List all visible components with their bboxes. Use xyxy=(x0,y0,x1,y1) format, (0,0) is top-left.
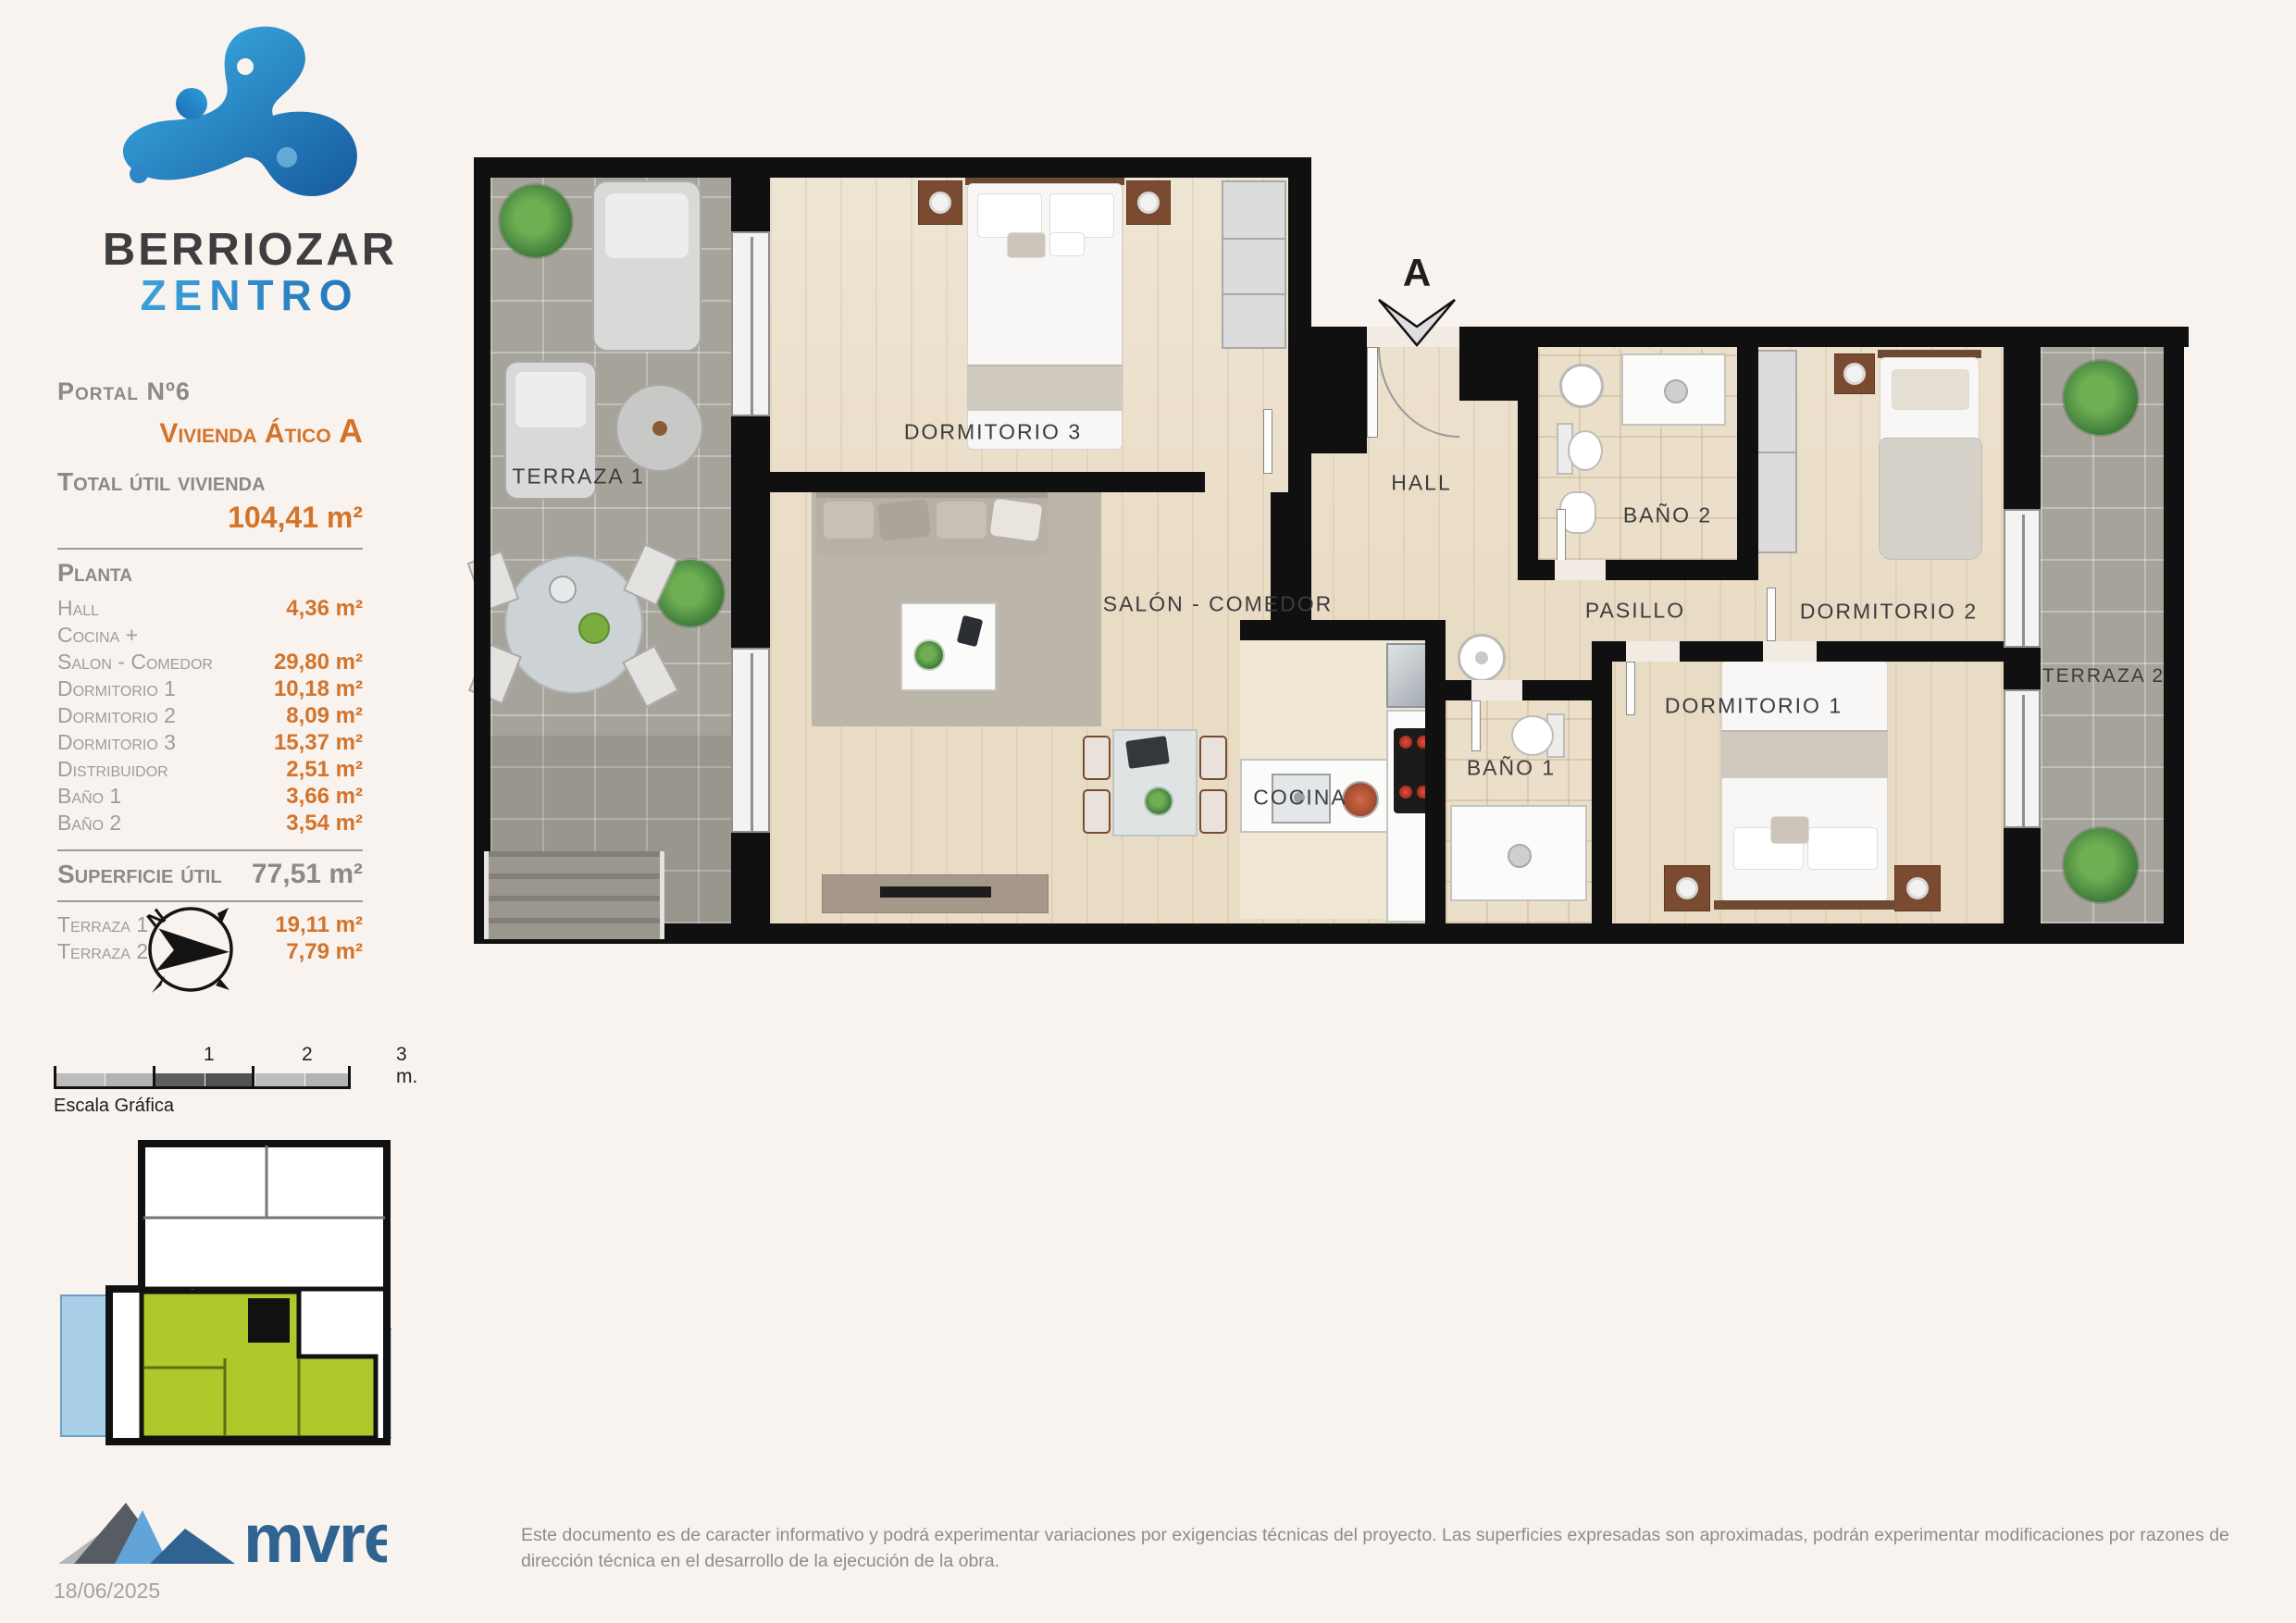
room-label-terraza1: TERRAZA 1 xyxy=(512,465,644,489)
door-opening xyxy=(1763,641,1817,662)
room-label-pasillo: PASILLO xyxy=(1585,599,1685,624)
nightstand xyxy=(1126,180,1171,225)
door-leaf xyxy=(1263,409,1272,474)
brand-name-bottom: ZENTRO xyxy=(51,274,449,316)
bed-headboard xyxy=(1714,900,1895,910)
tv-icon xyxy=(880,886,991,898)
wall xyxy=(1518,349,1538,580)
wall xyxy=(1737,327,1758,580)
toilet xyxy=(1511,710,1565,758)
scale-caption: Escala Gráfica xyxy=(54,1096,174,1117)
planta-header: Planta xyxy=(57,559,363,588)
door-leaf xyxy=(1767,588,1776,641)
room-label-dormitorio3: DORMITORIO 3 xyxy=(904,420,1082,445)
plant-icon xyxy=(2064,828,2138,902)
table-row: Dormitorio 110,18 m² xyxy=(57,675,363,702)
mvre-logo: mvre xyxy=(54,1497,387,1571)
plant-icon xyxy=(2064,361,2138,435)
wall xyxy=(1425,640,1446,923)
room-label-dormitorio1: DORMITORIO 1 xyxy=(1665,694,1843,719)
divider xyxy=(57,849,363,851)
room-label-bano1: BAÑO 1 xyxy=(1467,756,1556,781)
washbasin xyxy=(1559,364,1604,408)
chair xyxy=(1199,789,1227,834)
portal-title: Portal Nº6 xyxy=(57,378,363,406)
nightstand xyxy=(1834,353,1875,394)
door-leaf xyxy=(1626,662,1635,715)
floor-plan: A TERRAZA 1 DORMITORIO 3 HALL BAÑO 2 DOR… xyxy=(467,88,2193,985)
wall xyxy=(1311,345,1367,453)
scale-tick-label: 3 m. xyxy=(396,1044,417,1088)
scale-tick-label: 1 xyxy=(204,1044,215,1066)
wall xyxy=(1240,620,1446,640)
door-opening xyxy=(1555,560,1606,580)
wall xyxy=(770,472,1205,492)
room-label-bano2: BAÑO 2 xyxy=(1623,503,1712,528)
double-bed xyxy=(967,183,1123,450)
total-util-value: 104,41 m² xyxy=(57,501,363,535)
total-util-label: Total útil vivienda xyxy=(57,467,363,497)
window xyxy=(731,231,770,416)
outdoor-dining-table xyxy=(504,555,643,694)
wall xyxy=(474,157,490,944)
fruit-plate-icon xyxy=(1342,781,1379,818)
window xyxy=(2004,689,2041,828)
mvre-logo-text: mvre xyxy=(243,1500,387,1571)
table-row: Salon - Comedor29,80 m² xyxy=(57,649,363,675)
berriozar-logo: BERRIOZAR ZENTRO xyxy=(51,19,449,316)
compass-north-letter: N xyxy=(143,904,170,934)
door-leaf xyxy=(1471,700,1481,751)
table-row: Dormitorio 28,09 m² xyxy=(57,702,363,729)
brand-name-top: BERRIOZAR xyxy=(51,227,449,274)
chair xyxy=(1083,789,1111,834)
document-date: 18/06/2025 xyxy=(54,1579,160,1604)
divider xyxy=(57,548,363,550)
door-opening xyxy=(1626,641,1680,662)
room-label-terraza2: TERRAZA 2 xyxy=(2042,665,2165,688)
table-row: Baño 23,54 m² xyxy=(57,810,363,836)
berriozar-logo-splash xyxy=(51,19,449,222)
chair xyxy=(1083,736,1111,780)
vivienda-title: Vivienda Ático A xyxy=(57,412,363,451)
section-arrow-icon xyxy=(1378,299,1456,347)
chair xyxy=(1199,736,1227,780)
table-row: Hall4,36 m² xyxy=(57,595,363,622)
nightstand xyxy=(1664,865,1710,911)
compass-icon: N xyxy=(135,894,246,1005)
table-row: Distribuidor2,51 m² xyxy=(57,756,363,783)
shower-tray xyxy=(1621,353,1726,426)
wardrobe xyxy=(1222,180,1286,349)
scale-tick-label: 2 xyxy=(302,1044,313,1066)
terrace-stairs xyxy=(484,851,664,939)
door-opening xyxy=(1471,680,1522,700)
wall xyxy=(474,923,2184,944)
tv-unit xyxy=(822,874,1049,913)
superficie-row: Superficie útil77,51 m² xyxy=(57,861,363,887)
table-row: Baño 13,66 m² xyxy=(57,783,363,810)
wall xyxy=(474,157,1311,178)
room-label-salon: SALÓN - COMEDOR xyxy=(1103,592,1334,617)
entrance-door-leaf xyxy=(1367,347,1378,438)
dining-table xyxy=(1112,729,1198,836)
graphic-scale: 1 2 3 m. Escala Gráfica xyxy=(54,1044,368,1118)
nightstand xyxy=(918,180,962,225)
nightstand xyxy=(1894,865,1941,911)
exterior-mask xyxy=(1311,88,2193,327)
coffee-table xyxy=(900,602,997,691)
single-bed xyxy=(1880,357,1980,559)
side-table xyxy=(615,384,703,472)
room-label-cocina: COCINA xyxy=(1253,786,1347,811)
lounge-chair xyxy=(592,180,701,352)
sliding-door-window xyxy=(731,648,770,833)
room-label-hall: HALL xyxy=(1391,471,1452,496)
surface-table: Portal Nº6 Vivienda Ático A Total útil v… xyxy=(57,378,363,965)
table-row: Cocina + xyxy=(57,622,363,649)
washbasin xyxy=(1458,634,1506,682)
tablet-icon xyxy=(957,615,984,647)
shower-tray xyxy=(1450,805,1587,901)
window xyxy=(2004,509,2041,648)
wall xyxy=(2164,327,2184,944)
room-label-dormitorio2: DORMITORIO 2 xyxy=(1800,600,1978,625)
disclaimer-text: Este documento es de caracter informativ… xyxy=(521,1522,2261,1575)
section-marker-letter: A xyxy=(1403,251,1431,295)
plant-icon xyxy=(500,185,572,257)
table-row: Dormitorio 315,37 m² xyxy=(57,729,363,756)
key-plan xyxy=(54,1136,391,1520)
toilet xyxy=(1557,423,1599,477)
laptop-icon xyxy=(1125,736,1170,769)
sofa xyxy=(816,498,1048,555)
door-leaf xyxy=(1557,509,1566,562)
